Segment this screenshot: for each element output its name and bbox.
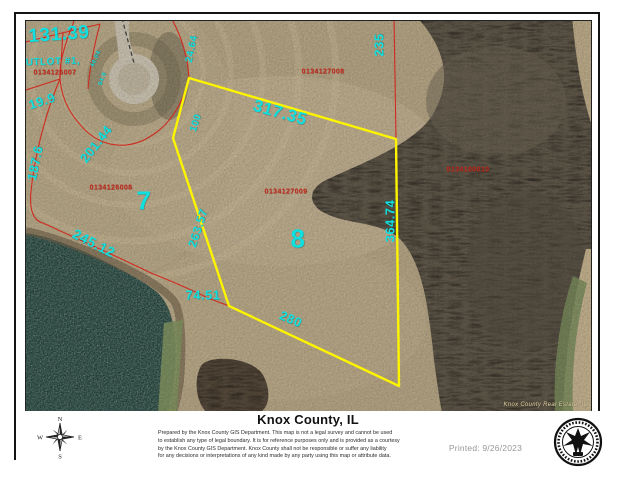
disclaimer-line: to establish any type of legal boundary.… (158, 438, 458, 446)
imagery-credit: Knox County Real Estate, IL (504, 402, 587, 408)
compass-n: N (58, 416, 63, 423)
map-footer: Knox County, IL Prepared by the Knox Cou… (16, 411, 600, 460)
compass-rose: N S W E (30, 414, 90, 465)
page-title: Knox County, IL (16, 412, 600, 427)
disclaimer-text: Prepared by the Knox County GIS Departme… (158, 430, 458, 461)
aerial-imagery (26, 21, 591, 411)
county-seal-icon (553, 417, 603, 472)
printed-date: Printed: 9/26/2023 (449, 443, 522, 453)
disclaimer-line: Prepared by the Knox County GIS Departme… (158, 430, 458, 438)
compass-w: W (37, 435, 44, 442)
compass-e: E (78, 435, 82, 442)
aerial-map: 131.39UTLOT #1,013412600719.940.0494.924… (25, 20, 592, 412)
compass-s: S (58, 454, 62, 461)
disclaimer-line: by the Knox County GIS Department. Knox … (158, 446, 458, 454)
disclaimer-line: for any decisions or interpretations of … (158, 453, 458, 461)
page: { "header": { "title": "Knox County, IL"… (0, 0, 621, 480)
